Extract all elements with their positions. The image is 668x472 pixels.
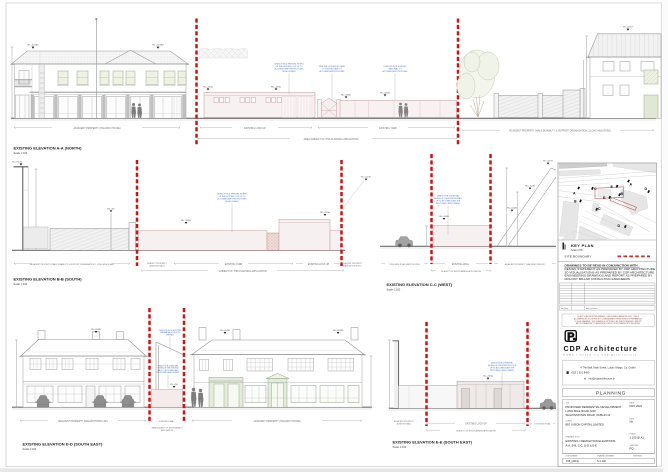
svg-text:A: A (630, 182, 633, 186)
svg-text:EXISTING WALL: EXISTING WALL (452, 263, 470, 266)
svg-text:RL +7.230: RL +7.230 (525, 186, 535, 188)
svg-text:EXISTING / DEMOLITION ELEVATIO: EXISTING / DEMOLITION ELEVATIONS (566, 439, 616, 443)
svg-text:RL +5.150: RL +5.150 (361, 177, 371, 179)
svg-text:DRAWING NUMBER: DRAWING NUMBER (597, 455, 615, 458)
svg-text:SUBJECT OF THIS PLANNING APPLI: SUBJECT OF THIS PLANNING APPLICATION (441, 270, 481, 273)
svg-text:EXISTING WALL: EXISTING WALL (159, 420, 176, 423)
svg-text:ADJACENT PROPERTY (WALKINSTOWN: ADJACENT PROPERTY (WALKINSTOWN RD.) (505, 263, 546, 266)
svg-text:ADJACENT PROPERTY (WALK DISABI: ADJACENT PROPERTY (WALK DISABILITY & SUP… (509, 129, 611, 132)
svg-text:ACCOMMODATE PROPOSED: ACCOMMODATE PROPOSED (320, 70, 346, 73)
svg-text:Scale 1:100: Scale 1:100 (393, 445, 407, 449)
svg-text:KEY PLAN: KEY PLAN (571, 243, 594, 248)
svg-text:RL +10.180: RL +10.180 (153, 45, 165, 47)
svg-text:EXISTING LOCK UP: EXISTING LOCK UP (465, 423, 487, 425)
svg-text:PQMS Limited t/a CDP Architect: PQMS Limited t/a CDP Architecture (564, 354, 638, 357)
svg-text:RL +4.150: RL +4.150 (483, 376, 493, 378)
svg-text:B: B (574, 199, 577, 203)
svg-text:PQ: PQ (630, 447, 634, 451)
svg-text:No.: No. (630, 420, 635, 424)
svg-text:SUBJECT OF THIS PLANNING APPLI: SUBJECT OF THIS PLANNING APPLICATION (219, 270, 267, 273)
svg-text:EXISTING LOCK UP: EXISTING LOCK UP (244, 128, 266, 130)
svg-text:SUBJECT OF THIS PLANNING APPLI: SUBJECT OF THIS PLANNING APPLICATION (456, 429, 496, 432)
svg-text:PROPOSED DEVELOPMENT: PROPOSED DEVELOPMENT (490, 370, 515, 372)
svg-text:RL +8.435: RL +8.435 (333, 330, 343, 332)
svg-text:info@cdparchitecture.ie: info@cdparchitecture.ie (589, 378, 616, 381)
svg-text:DEVELOPMENT: DEVELOPMENT (282, 71, 296, 73)
svg-text:WALKINSTOWN ROAD, DUBLIN 12: WALKINSTOWN ROAD, DUBLIN 12 (566, 413, 611, 417)
svg-text:Scale 1:100: Scale 1:100 (23, 447, 37, 451)
svg-text:LONG MILE ROAD (WEST BOUND): LONG MILE ROAD (WEST BOUND) (389, 263, 420, 266)
svg-text:REVISION: REVISION (634, 456, 643, 458)
svg-text:EXISTING YARD: EXISTING YARD (379, 127, 397, 130)
svg-text:APPLICATION: APPLICATION (161, 429, 173, 432)
svg-text:(EXISTING HALL): (EXISTING HALL) (397, 422, 412, 425)
svg-text:JOB NUMBER: JOB NUMBER (566, 456, 578, 458)
svg-text:Scale 1:100: Scale 1:100 (14, 282, 28, 286)
svg-text:RL +5.420: RL +5.420 (507, 208, 517, 210)
svg-text:RL +3.650: RL +3.650 (380, 93, 390, 95)
svg-text:(EXISTING HALL): (EXISTING HALL) (149, 264, 165, 267)
svg-text:C: C (598, 207, 601, 211)
svg-text:EXISTING ELEVATION C-C (WEST): EXISTING ELEVATION C-C (WEST) (387, 282, 453, 287)
svg-text:ADJACENT PROPERTY (WALKINSTOWN: ADJACENT PROPERTY (WALKINSTOWN LTD.) (58, 420, 108, 423)
svg-text:ADJACENT PROPERTY (WALK DISABI: ADJACENT PROPERTY (WALK DISABILITY & SUP… (30, 263, 114, 266)
svg-text:RL +4.150: RL +4.150 (203, 87, 213, 89)
svg-text:SITE BOUNDARY: SITE BOUNDARY (565, 255, 592, 259)
svg-text:RL +4.150: RL +4.150 (320, 212, 330, 214)
svg-text:108_(2019): 108_(2019) (566, 460, 579, 463)
svg-text:CHECKED: CHECKED (630, 445, 639, 447)
svg-text:A: A (573, 191, 576, 195)
svg-text:Scale 1:100: Scale 1:100 (387, 288, 401, 292)
svg-text:date_revision: date_revision (586, 307, 597, 310)
svg-text:AREA SUBJECT OF THIS PLANNING: AREA SUBJECT OF THIS PLANNING APPLICATIO… (304, 138, 359, 141)
svg-text:4 The Mall, Main Street, Lucan: 4 The Mall, Main Street, Lucan Village, … (580, 366, 636, 369)
svg-text:CDP Architecture: CDP Architecture (564, 346, 638, 353)
svg-text:RL +10.180: RL +10.180 (28, 45, 40, 47)
svg-text:RL +4.150: RL +4.150 (271, 87, 281, 89)
svg-text:EXISTING ELEVATION A-A (NORTH): EXISTING ELEVATION A-A (NORTH) (14, 146, 83, 151)
svg-text:EXISTING YARD: EXISTING YARD (225, 263, 243, 266)
svg-text:MOLONY MILLAR CONSULTING ENGIN: MOLONY MILLAR CONSULTING ENGINEERS (565, 277, 630, 281)
svg-text:DEVELOPMENT: DEVELOPMENT (225, 201, 239, 203)
svg-text:EXISTING LOCK UP: EXISTING LOCK UP (308, 264, 330, 266)
svg-text:LONG MILE ROAD AND: LONG MILE ROAD AND (566, 409, 596, 413)
svg-text:(WALKINSTOWN RD.): (WALKINSTOWN RD.) (342, 264, 362, 267)
svg-text:PLANNING: PLANNING (596, 391, 626, 397)
svg-text:MAY 2022: MAY 2022 (630, 404, 643, 408)
svg-text:rev_date: rev_date (561, 307, 568, 310)
svg-text:Scale 1:100: Scale 1:100 (14, 151, 28, 155)
svg-text:SCALE: SCALE (630, 433, 637, 436)
svg-text:EXISTING ELEVATION E-E (SOUTH: EXISTING ELEVATION E-E (SOUTH EAST) (393, 440, 473, 445)
svg-text:RL +9.117: RL +9.117 (623, 27, 633, 29)
svg-text:1:100 @ A1: 1:100 @ A1 (630, 435, 645, 439)
svg-text:A-A, B-B, C-C, D-D & E-E: A-A, B-B, C-C, D-D & E-E (566, 443, 598, 447)
svg-text:RL +3.650: RL +3.650 (341, 95, 351, 97)
svg-text:ADJACENT PROPERTY (HALFWAY HOU: ADJACENT PROPERTY (HALFWAY HOUSE) (73, 127, 120, 130)
svg-text:D: D (618, 224, 621, 228)
svg-text:EXISTING ELEVATION D-D (SOUTH: EXISTING ELEVATION D-D (SOUTH EAST) (23, 442, 104, 447)
svg-text:Scale NTS: Scale NTS (571, 249, 583, 252)
svg-text:B: B (621, 192, 624, 196)
svg-text:ADJACENT PROPERTY (HALFWAY HOU: ADJACENT PROPERTY (HALFWAY HOUSE) (253, 420, 300, 423)
svg-text:D: D (645, 187, 648, 191)
svg-text:PROPOSED RESIDENTIAL DEVELOPME: PROPOSED RESIDENTIAL DEVELOPMENT (566, 405, 622, 409)
svg-text:THE HALL: THE HALL (166, 333, 174, 336)
svg-text:PROPOSED DEVELOPMENT: PROPOSED DEVELOPMENT (436, 203, 461, 205)
svg-text:C: C (594, 187, 597, 191)
svg-text:RL +8.435: RL +8.435 (91, 329, 101, 331)
svg-text:CLIENT: CLIENT (566, 421, 573, 423)
svg-text:RL +3.650: RL +3.650 (181, 220, 191, 222)
svg-text:RL +2.8: RL +2.8 (170, 384, 178, 386)
svg-text:PROPOSED DEVELOPMENT: PROPOSED DEVELOPMENT (157, 372, 180, 374)
svg-text:LONG MILE ROAD: LONG MILE ROAD (534, 422, 551, 425)
svg-text:RL +9.137: RL +9.137 (12, 162, 22, 164)
svg-text:BIG VISION CAPITAL LIMITED: BIG VISION CAPITAL LIMITED (566, 423, 604, 427)
svg-text:+353 1 621 8499: +353 1 621 8499 (571, 372, 590, 375)
svg-text:EXISTING ELEVATION B-B (SOUTH): EXISTING ELEVATION B-B (SOUTH) (14, 277, 83, 282)
svg-text:DRAWING TITLE: DRAWING TITLE (566, 436, 581, 439)
svg-text:RL +4.5: RL +4.5 (107, 209, 115, 211)
svg-text:RL +8.435: RL +8.435 (220, 330, 230, 332)
svg-text:ACCOMMODATE PROPOSED: ACCOMMODATE PROPOSED (383, 70, 409, 73)
svg-text:RL +9.137: RL +9.137 (543, 161, 553, 163)
svg-text:S-1 100: S-1 100 (597, 460, 606, 463)
